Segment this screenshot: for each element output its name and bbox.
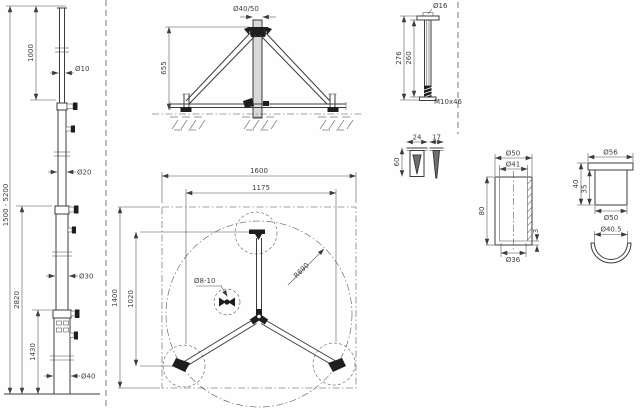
elevation-height-label: 655 xyxy=(160,61,168,74)
wedge-height-label: 60 xyxy=(393,158,401,167)
ground-hatch xyxy=(170,117,353,130)
sleeve-detail: Ø50 Ø41 80 3 Ø36 xyxy=(478,150,540,265)
sleeve-height-label: 80 xyxy=(478,207,486,216)
rod-shaft xyxy=(425,20,432,86)
cap-body-dia-label: Ø50 xyxy=(604,214,618,222)
plan-radius-label: R690 xyxy=(292,261,311,280)
wedge-side-view xyxy=(433,151,440,179)
dia4-label: Ø40 xyxy=(81,373,95,381)
technical-drawing-canvas: 1500 - 5200 1000 2820 1430 xyxy=(0,0,640,410)
dim-overall-label: 1500 - 5200 xyxy=(2,184,10,227)
foot-pad-top xyxy=(249,230,265,235)
clamp-knob xyxy=(75,310,80,319)
clamp-knob xyxy=(71,126,75,133)
earthing-rod-detail: 276 260 Ø16 M10x46 xyxy=(395,2,463,106)
base-clamp-lever xyxy=(243,98,254,108)
cap-flange xyxy=(588,163,633,170)
wedge-front-w-label: 24 xyxy=(413,134,422,142)
rod-dia-label: Ø16 xyxy=(433,2,448,10)
clamp-knob xyxy=(73,103,78,111)
mast-section-3 xyxy=(56,214,68,310)
wedge-side-w-label: 17 xyxy=(432,134,441,142)
technical-drawing-page: 1500 - 5200 1000 2820 1430 xyxy=(0,0,640,410)
plan-h-outer-label: 1400 xyxy=(111,289,119,307)
dim-top-label: 1000 xyxy=(27,44,35,62)
plan-h-feet-label: 1020 xyxy=(127,290,135,308)
tripod-plan-view: 1600 1175 1400 1020 R690 xyxy=(111,167,356,407)
cap-flange-dia-label: Ø56 xyxy=(603,149,618,157)
wedge-detail: 24 60 17 xyxy=(393,134,444,179)
plan-clamp-dia-label: Ø8-10 xyxy=(194,277,215,285)
dim-mid-label: 2820 xyxy=(13,291,21,309)
half-shell-detail: Ø40.5 xyxy=(591,226,631,264)
dia1-label: Ø10 xyxy=(75,65,89,73)
sleeve-bottom-dia-label: Ø36 xyxy=(506,256,521,264)
foot-pad xyxy=(328,107,339,112)
dia3-label: Ø30 xyxy=(79,273,93,281)
dim-lower-label: 1430 xyxy=(29,343,37,361)
sleeve-inner-dia-label: Ø41 xyxy=(506,161,520,169)
rod-top-flange xyxy=(417,16,439,20)
dia2-label: Ø20 xyxy=(77,169,91,177)
sleeve-outer-dia-label: Ø50 xyxy=(506,150,520,158)
clamp-knob xyxy=(74,206,79,214)
mast-section-2 xyxy=(58,110,66,206)
plan-w-feet-label: 1175 xyxy=(252,184,270,192)
rod-len-inner-label: 260 xyxy=(405,51,413,64)
cap-body xyxy=(595,170,627,205)
half-shell-body xyxy=(591,243,631,263)
foot-pad xyxy=(181,107,192,112)
mast-section-1 xyxy=(60,8,65,103)
cap-height-total-label: 40 xyxy=(572,180,580,189)
tripod-leg xyxy=(264,31,330,101)
cap-height-body-label: 35 xyxy=(581,185,589,194)
rod-len-outer-label: 276 xyxy=(395,51,403,65)
tripod-leg xyxy=(186,31,252,101)
cap-detail: Ø56 40 35 Ø50 xyxy=(572,149,633,223)
clamp-knob xyxy=(72,227,76,234)
tripod-elevation-view: 655 Ø40/50 xyxy=(152,5,364,130)
shell-dia-label: Ø40.5 xyxy=(600,226,621,234)
mast-side-view: 1500 - 5200 1000 2820 1430 xyxy=(2,6,100,394)
elevation-dia-label: Ø40/50 xyxy=(233,5,259,13)
clamp-knob xyxy=(74,332,78,340)
foot-pad-right xyxy=(328,358,346,372)
plan-w-outer-label: 1600 xyxy=(250,167,268,175)
rod-thread-label: M10x46 xyxy=(434,98,463,106)
sleeve-lip-label: 3 xyxy=(532,229,540,233)
